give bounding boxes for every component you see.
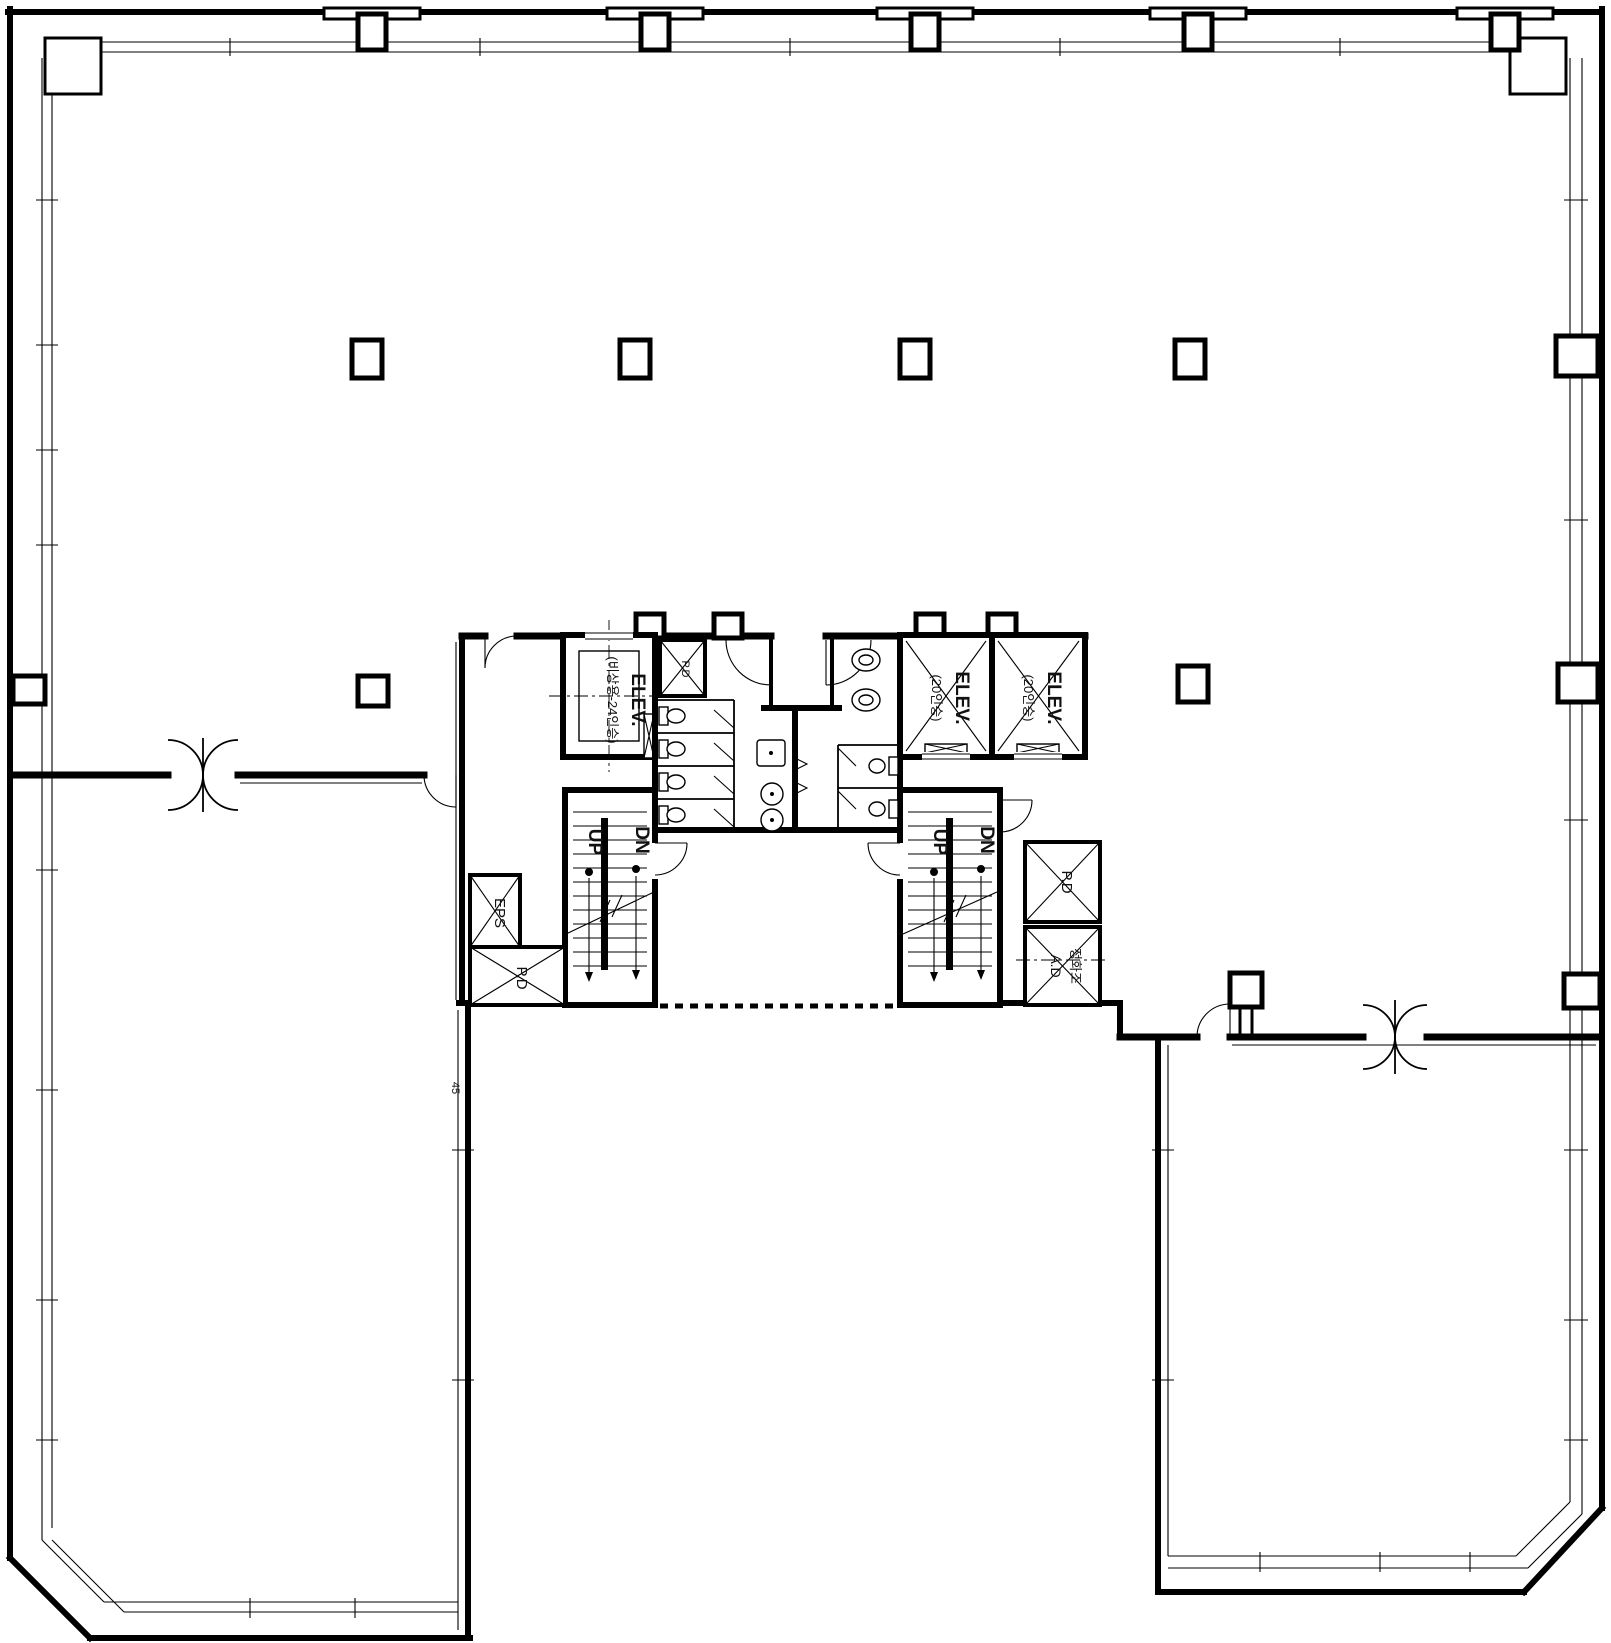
stair-left-up-label: UP — [584, 829, 605, 856]
stair-right: UP DN — [868, 790, 1032, 1005]
swing-door-right-corridor — [1197, 1004, 1230, 1037]
column-grid — [13, 8, 1600, 1037]
corridor-door — [485, 636, 517, 668]
double-door-right — [1363, 1000, 1427, 1074]
elevator-passenger-2: ELEV. (20인승) — [992, 635, 1085, 761]
elevator-1-label: ELEV. — [951, 671, 972, 724]
right-partition-wall — [1120, 1000, 1600, 1074]
toilet-entry-niche — [726, 636, 871, 708]
elevator-passenger-1: ELEV. (20인승) — [900, 635, 992, 761]
stair-right-dn-label: DN — [976, 826, 997, 853]
pd-toilet-label: P.D — [679, 661, 691, 678]
womens-toilet — [838, 649, 900, 832]
eps-label: EPS — [491, 898, 508, 928]
pd-right-label: P.D — [1058, 870, 1075, 893]
core: ELEV. (비상용-24인승) ELEV. (20인승) — [449, 614, 1120, 1094]
double-door-left — [168, 738, 238, 812]
left-partition-wall — [12, 738, 456, 812]
elevator-2-label: ELEV. — [1043, 671, 1064, 724]
shaft-ad: 정화조 A.D — [1016, 927, 1108, 1005]
columns-row-2 — [13, 664, 1598, 706]
stair-left-dn-label: DN — [631, 826, 652, 853]
corner-column — [45, 38, 101, 94]
stair-left: UP DN — [565, 790, 687, 1005]
ad-septic-label: 정화조 — [1068, 948, 1083, 984]
pd-left-label: P.D — [513, 966, 530, 989]
shaft-pd-left: P.D — [470, 947, 565, 1005]
ad-label: A.D — [1048, 954, 1064, 977]
shaft-eps: EPS — [470, 875, 520, 947]
columns-row-3 — [1230, 973, 1600, 1037]
dim-note: 45 — [449, 1082, 461, 1094]
stair-right-up-label: UP — [929, 829, 950, 856]
elevator-2-capacity: (20인승) — [1021, 674, 1036, 721]
swing-door-left-corridor — [424, 775, 456, 807]
exterior-walls — [8, 9, 1602, 1638]
elevator-1-capacity: (20인승) — [929, 674, 944, 721]
floor-plan-page: ELEV. (비상용-24인승) ELEV. (20인승) — [0, 0, 1611, 1643]
columns-row-1 — [352, 336, 1598, 378]
elevator-service-capacity: (비상용-24인승) — [605, 656, 620, 743]
shaft-pd-right: P.D — [1025, 842, 1100, 922]
elevator-service-label: ELEV. — [627, 673, 648, 726]
floor-plan-drawing: ELEV. (비상용-24인승) ELEV. (20인승) — [0, 0, 1611, 1643]
